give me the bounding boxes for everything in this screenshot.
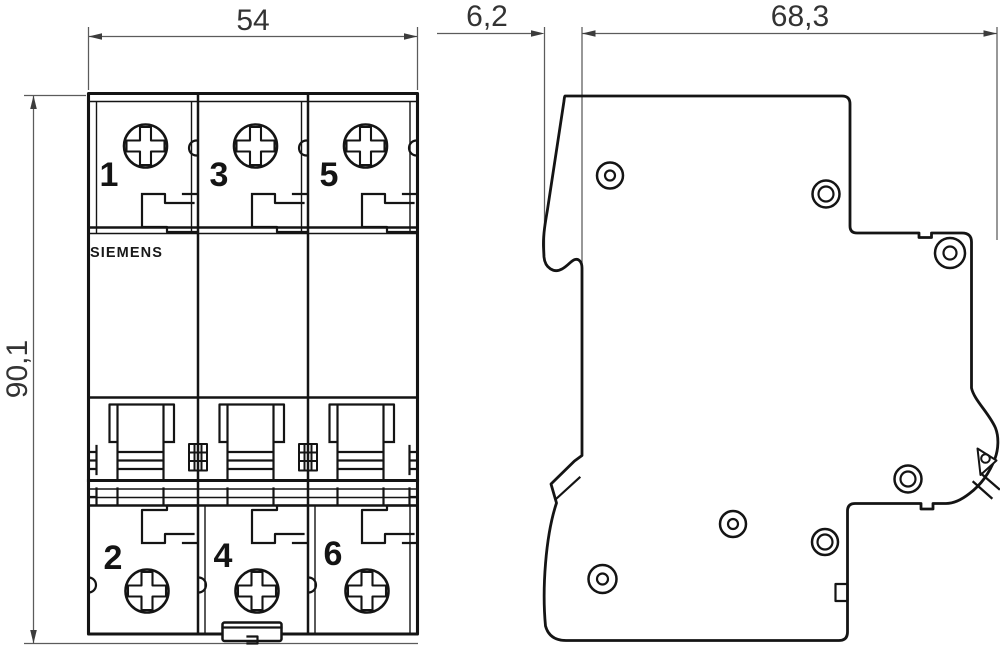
dim-side-body-depth: 68,3 (582, 0, 997, 240)
arrow-right-icon (984, 30, 998, 37)
dim-side-front-depth-value: 6,2 (466, 0, 508, 33)
terminal-number-2: 2 (104, 539, 123, 577)
rivet-outer (597, 163, 623, 189)
rivet-inner (597, 574, 608, 585)
front-thin-lines (89, 102, 418, 635)
side-inner-window (836, 584, 848, 601)
terminal-number-4: 4 (214, 537, 233, 575)
rivet-outer (895, 466, 922, 493)
rivet-outer (935, 238, 965, 268)
arrow-left-icon (89, 33, 103, 40)
rivet-outer (589, 565, 617, 593)
terminal-numbers: 1 3 5 2 4 6 (100, 156, 343, 577)
arrow-up-icon (30, 96, 37, 110)
terminal-number-5: 5 (320, 156, 339, 194)
toggle-pole-1 (110, 405, 175, 506)
rivet-inner (818, 535, 833, 550)
arrow-right-icon (404, 33, 418, 40)
label-tray (223, 623, 282, 644)
dim-front-width: 54 (89, 4, 418, 90)
pole-5-top (344, 125, 417, 233)
front-view: SIEMENS 1 3 5 2 4 6 (89, 94, 418, 644)
front-outline (89, 94, 418, 635)
circuit-breaker-drawing: 54 90,1 6,2 68,3 (0, 0, 1000, 648)
terminal-number-3: 3 (210, 156, 229, 194)
dim-front-height-value: 90,1 (1, 340, 34, 398)
arrow-down-icon (30, 630, 37, 644)
rivets (589, 163, 966, 594)
rivet-outer (720, 511, 746, 537)
terminal-number-6: 6 (324, 535, 343, 573)
dim-side-body-depth-value: 68,3 (771, 0, 829, 33)
arrow-left-icon (582, 30, 596, 37)
pole-1-top (124, 125, 197, 233)
toggle-pole-3 (330, 405, 395, 506)
toggle-pole-2 (220, 405, 285, 506)
rivet-inner (901, 472, 916, 487)
rivet-inner (605, 171, 615, 181)
rivet-inner (728, 519, 738, 529)
front-section-lines (89, 228, 418, 506)
terminal-number-1: 1 (100, 156, 119, 194)
side-view (543, 96, 999, 641)
brand-logo: SIEMENS (90, 245, 163, 261)
arrow-right-icon (531, 30, 545, 37)
hook-slot (974, 474, 1000, 499)
side-outline (543, 96, 997, 641)
rivet-outer (812, 529, 838, 555)
rivet-inner (944, 247, 957, 260)
dimension-drawing-canvas: 54 90,1 6,2 68,3 (0, 0, 1000, 648)
pole-3-top (234, 125, 307, 233)
rivet-outer (813, 181, 840, 208)
dim-front-width-value: 54 (236, 4, 269, 37)
rivet-inner (819, 187, 834, 202)
release-tab-inner-edge (556, 478, 580, 500)
